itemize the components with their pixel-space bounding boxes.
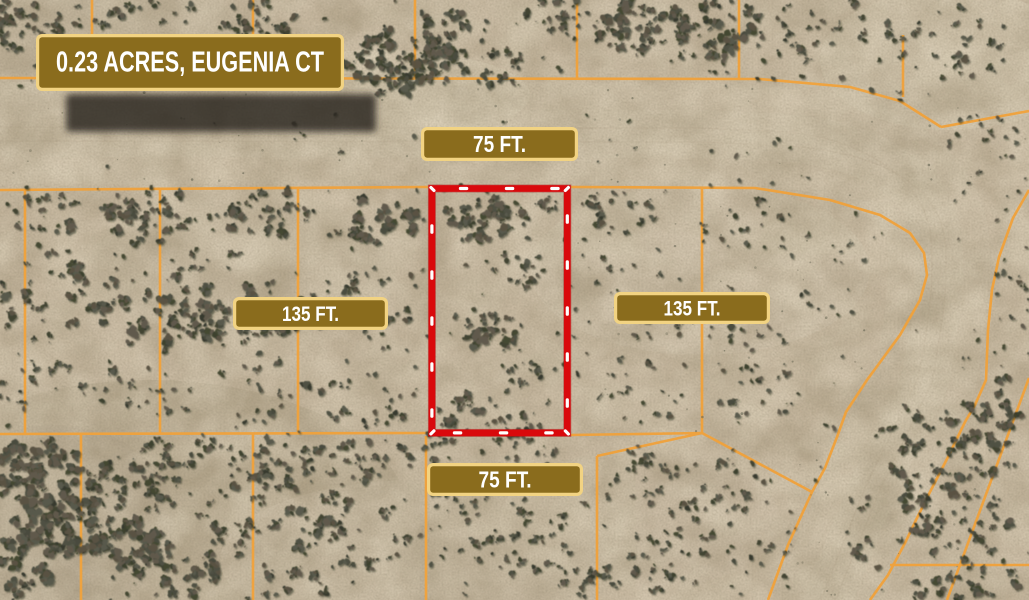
svg-text:75 FT.: 75 FT. [479, 467, 532, 493]
svg-text:75 FT.: 75 FT. [473, 131, 526, 157]
svg-text:135 FT.: 135 FT. [664, 297, 721, 320]
svg-text:135 FT.: 135 FT. [282, 303, 339, 326]
svg-text:0.23 ACRES, EUGENIA CT: 0.23 ACRES, EUGENIA CT [56, 46, 324, 78]
